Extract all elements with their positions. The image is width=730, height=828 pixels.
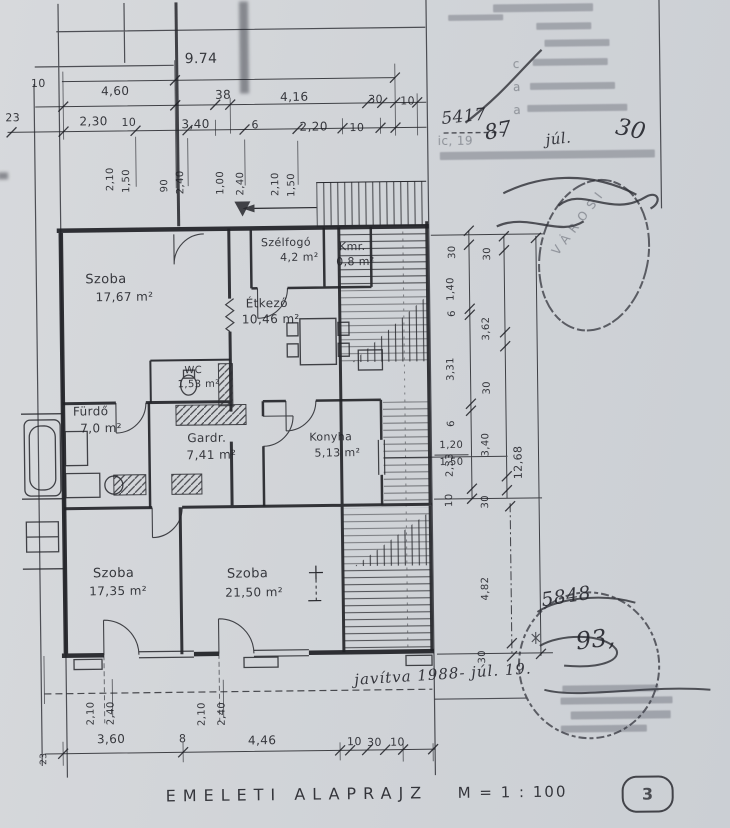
room-area-szoba2: 17,35 m² [89, 585, 147, 598]
dim-v-210b: 2,10 [271, 172, 281, 196]
dim-door-240a: 2,40 [107, 701, 117, 725]
room-label-szoba2: Szoba [93, 567, 134, 581]
room-area-szoba1: 17,67 m² [95, 291, 153, 304]
room-label-furdo: Fürdő [73, 405, 109, 417]
faint-print-line [571, 710, 671, 719]
room-label-wc: WC [184, 366, 202, 376]
dim-door-210b: 2,10 [198, 702, 208, 726]
dim-top-10: 10 [31, 78, 46, 89]
typed-date-prefix: ic, 19 [438, 135, 473, 147]
dim-38: 38 [215, 89, 231, 101]
dim-r-482: 4,82 [481, 577, 491, 601]
dim-10: 10 [400, 95, 415, 106]
room-area-szelfogo: 4,2 m² [280, 252, 319, 263]
dim-window-150: 1,50 [440, 458, 464, 468]
dim-r-30c: 30 [483, 381, 493, 395]
faint-print-line [561, 725, 647, 733]
sheet-number: 3 [642, 786, 654, 802]
room-label-gardr: Gardr. [187, 432, 226, 444]
dim-b-360: 3,60 [97, 733, 125, 745]
faint-print-line [493, 3, 593, 12]
handwritten-registry-number: 5417 [441, 107, 487, 128]
dim-v-240: 2,40 [176, 170, 186, 194]
dim-10b: 10 [121, 117, 136, 128]
dim-r-6b: 6 [447, 420, 457, 427]
dim-v-100: 1,00 [216, 171, 226, 195]
dim-b-30: 30 [367, 737, 382, 748]
room-area-furdo: 7,0 m² [80, 422, 122, 435]
dim-r-6a: 6 [448, 310, 458, 317]
dim-total-974: 9.74 [185, 52, 218, 66]
room-label-szoba3: Szoba [227, 567, 268, 581]
dim-30: 30 [368, 94, 383, 105]
dim-10c: 10 [349, 122, 364, 133]
dim-r-340: 3,40 [481, 433, 491, 457]
faint-print-line [527, 104, 627, 112]
dim-r-30b: 30 [483, 247, 493, 261]
dim-v-150: 1,50 [122, 169, 132, 193]
sheet-number-badge: 3 [621, 775, 673, 813]
scan-smudge [239, 1, 249, 93]
room-area-gardr: 7,41 m² [186, 449, 236, 462]
faint-print-line [448, 14, 503, 21]
dim-v-240b: 2,40 [236, 172, 246, 196]
handwritten-day: 30 [614, 116, 648, 144]
dim-b-446: 4,46 [248, 734, 276, 746]
dim-door-210a: 2,10 [87, 701, 97, 725]
handwritten-number-93: 93, [575, 625, 617, 653]
room-label-etkezo: Étkező [246, 297, 288, 310]
faint-print-line [533, 58, 608, 66]
margin-letter-a2: a [513, 104, 521, 116]
handwritten-month: júl. [545, 130, 572, 147]
dim-window-120: 1,20 [439, 441, 463, 451]
drawing-sheet: Szoba 17,67 m² Szélfogó 4,2 m² Kmr. 0,8 … [0, 0, 730, 828]
dim-r-30d: 30 [481, 495, 491, 509]
sheet-scale: M = 1 : 100 [458, 785, 568, 801]
dim-230: 2,30 [79, 115, 107, 127]
dim-r-30a: 30 [448, 245, 458, 259]
dim-b-10b: 10 [390, 737, 405, 748]
room-area-kmr: 0,8 m² [336, 256, 375, 267]
room-area-etkezo: 10,46 m² [242, 313, 300, 326]
room-area-konyha: 5,13 m² [314, 447, 360, 459]
room-label-szoba1: Szoba [85, 273, 126, 287]
dim-23: 23 [5, 112, 20, 123]
sheet-title: EMELETI ALAPRAJZ [166, 785, 429, 804]
dim-r-total-1268: 12,68 [512, 446, 523, 480]
room-label-kmr: Kmr. [339, 241, 366, 252]
dim-b-23: 23 [40, 753, 49, 765]
dim-v-210: 2,10 [106, 167, 116, 191]
room-label-konyha: Konyha [309, 431, 352, 443]
room-area-wc: 1,53 m² [178, 380, 220, 391]
margin-letter-c: c [513, 58, 520, 70]
scan-smudge [0, 172, 8, 179]
dim-v-150b: 1,50 [287, 173, 297, 197]
faint-print-line [530, 82, 615, 90]
scanned-floorplan-page: Szoba 17,67 m² Szélfogó 4,2 m² Kmr. 0,8 … [0, 0, 730, 828]
dim-r-10: 10 [445, 493, 455, 507]
dim-416: 4,16 [280, 91, 308, 103]
room-label-szelfogo: Szélfogó [261, 237, 311, 249]
dim-door-240b: 2,40 [218, 702, 228, 726]
faint-print-line [544, 39, 609, 47]
dim-6: 6 [251, 119, 259, 130]
dim-460: 4,60 [101, 85, 129, 97]
dim-v-90: 90 [160, 179, 170, 193]
faint-print-line [536, 22, 591, 30]
dim-340: 3,40 [181, 118, 209, 130]
faint-print-line [562, 684, 658, 692]
dim-r-362: 3,62 [482, 317, 492, 341]
handwritten-year: 87 [483, 118, 514, 144]
dim-r-331: 3,31 [446, 357, 456, 381]
faint-print-line [560, 696, 672, 704]
room-area-szoba3: 21,50 m² [225, 586, 283, 599]
dim-220: 2,20 [299, 120, 327, 132]
dim-b-8: 8 [179, 733, 187, 744]
margin-letter-a1: a [513, 81, 521, 93]
dim-r-140: 1,40 [446, 277, 456, 301]
dim-b-10a: 10 [347, 736, 362, 747]
